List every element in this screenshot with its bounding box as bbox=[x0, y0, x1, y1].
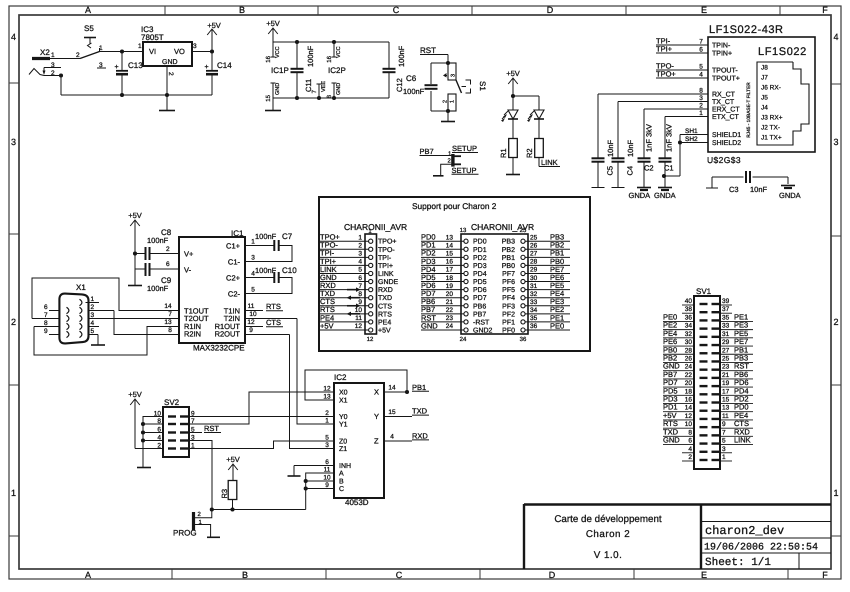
svg-text:9: 9 bbox=[44, 328, 48, 335]
svg-text:15: 15 bbox=[265, 94, 272, 101]
svg-text:MAX3232CPE: MAX3232CPE bbox=[193, 344, 245, 353]
svg-text:11: 11 bbox=[722, 413, 729, 420]
svg-text:23: 23 bbox=[446, 315, 454, 322]
svg-text:6: 6 bbox=[325, 459, 329, 466]
svg-text:7: 7 bbox=[44, 312, 48, 319]
svg-text:C: C bbox=[393, 5, 400, 15]
svg-text:3: 3 bbox=[11, 137, 16, 147]
svg-text:PF5: PF5 bbox=[502, 287, 515, 294]
svg-text:J5: J5 bbox=[761, 95, 768, 102]
svg-text:10nF: 10nF bbox=[750, 185, 768, 194]
svg-text:RST: RST bbox=[204, 424, 219, 433]
svg-text:PD4: PD4 bbox=[473, 271, 487, 278]
svg-text:S1: S1 bbox=[478, 81, 487, 91]
svg-text:SV1: SV1 bbox=[696, 287, 712, 296]
svg-text:V+: V+ bbox=[184, 250, 194, 259]
svg-text:2: 2 bbox=[699, 103, 703, 110]
svg-text:PB3: PB3 bbox=[502, 239, 515, 246]
svg-text:34: 34 bbox=[685, 323, 693, 330]
svg-text:34: 34 bbox=[530, 307, 538, 314]
svg-text:32: 32 bbox=[685, 331, 693, 338]
svg-text:GND2: GND2 bbox=[473, 327, 493, 334]
svg-text:GND: GND bbox=[275, 83, 281, 95]
svg-text:20: 20 bbox=[446, 291, 454, 298]
svg-text:17: 17 bbox=[446, 267, 454, 274]
svg-text:100nF: 100nF bbox=[147, 284, 169, 293]
svg-text:4: 4 bbox=[251, 271, 255, 278]
svg-text:TPOUT-: TPOUT- bbox=[712, 68, 738, 75]
svg-text:28: 28 bbox=[685, 347, 693, 354]
svg-text:40: 40 bbox=[685, 298, 693, 305]
svg-text:21: 21 bbox=[446, 299, 454, 306]
svg-text:Y: Y bbox=[374, 412, 379, 421]
svg-text:100nF: 100nF bbox=[397, 45, 406, 67]
svg-text:C6: C6 bbox=[406, 74, 417, 83]
svg-text:J6 RX-: J6 RX- bbox=[761, 85, 781, 92]
svg-text:23: 23 bbox=[722, 364, 730, 371]
svg-text:8: 8 bbox=[44, 320, 48, 327]
svg-text:INH: INH bbox=[339, 463, 351, 470]
svg-text:100nF: 100nF bbox=[147, 236, 169, 245]
svg-text:RJ45 - 10BASE-T FILTER: RJ45 - 10BASE-T FILTER bbox=[746, 82, 752, 138]
svg-text:C4: C4 bbox=[626, 166, 635, 176]
svg-text:15: 15 bbox=[722, 397, 730, 404]
svg-text:18: 18 bbox=[446, 275, 454, 282]
svg-text:25: 25 bbox=[520, 227, 527, 234]
svg-text:16: 16 bbox=[685, 397, 693, 404]
svg-text:9: 9 bbox=[325, 482, 329, 489]
svg-text:Charon 2: Charon 2 bbox=[586, 529, 630, 540]
svg-text:10: 10 bbox=[323, 475, 331, 482]
svg-text:4: 4 bbox=[699, 72, 703, 79]
svg-text:J3 RX+: J3 RX+ bbox=[761, 115, 783, 122]
svg-text:PD5: PD5 bbox=[473, 279, 487, 286]
svg-text:1: 1 bbox=[191, 443, 195, 450]
svg-text:5: 5 bbox=[91, 328, 95, 335]
svg-text:39: 39 bbox=[722, 298, 730, 305]
svg-text:31: 31 bbox=[530, 283, 538, 290]
svg-text:+5V: +5V bbox=[266, 19, 280, 28]
svg-text:GNDE: GNDE bbox=[378, 279, 399, 286]
svg-text:LINK: LINK bbox=[734, 436, 751, 445]
svg-text:36: 36 bbox=[685, 314, 693, 321]
svg-text:12: 12 bbox=[685, 413, 693, 420]
svg-text:1: 1 bbox=[251, 239, 255, 246]
svg-text:2: 2 bbox=[833, 317, 838, 327]
svg-text:11: 11 bbox=[355, 315, 362, 322]
svg-text:12: 12 bbox=[323, 386, 331, 393]
svg-text:R2IN: R2IN bbox=[184, 330, 201, 339]
svg-text:TPO+: TPO+ bbox=[378, 239, 396, 246]
svg-text:13: 13 bbox=[446, 234, 454, 241]
svg-text:13: 13 bbox=[722, 405, 730, 412]
svg-text:17: 17 bbox=[722, 388, 730, 395]
svg-text:Z0: Z0 bbox=[339, 439, 347, 446]
svg-text:RTS: RTS bbox=[378, 311, 392, 318]
svg-text:13: 13 bbox=[323, 394, 331, 401]
svg-text:6: 6 bbox=[166, 261, 170, 268]
svg-text:PE0: PE0 bbox=[550, 321, 564, 330]
svg-text:C1: C1 bbox=[664, 164, 674, 173]
svg-text:100nF: 100nF bbox=[306, 45, 315, 67]
svg-text:LF1S022-43R: LF1S022-43R bbox=[709, 24, 784, 36]
svg-text:6: 6 bbox=[688, 438, 692, 445]
svg-text:3: 3 bbox=[193, 43, 197, 50]
svg-text:5: 5 bbox=[699, 64, 703, 71]
svg-text:D: D bbox=[547, 5, 554, 15]
svg-text:R2OUT: R2OUT bbox=[215, 330, 241, 339]
svg-text:RTS: RTS bbox=[266, 302, 281, 311]
svg-text:10nF: 10nF bbox=[606, 139, 615, 157]
svg-text:GND: GND bbox=[336, 83, 342, 95]
svg-text:TPI-: TPI- bbox=[378, 255, 392, 262]
svg-text:GNDA: GNDA bbox=[654, 191, 676, 200]
svg-text:8: 8 bbox=[358, 291, 362, 298]
svg-text:4: 4 bbox=[833, 32, 838, 42]
svg-text:D: D bbox=[549, 570, 556, 580]
svg-text:R2: R2 bbox=[525, 148, 534, 158]
svg-text:10: 10 bbox=[355, 307, 363, 314]
svg-text:PB7: PB7 bbox=[473, 311, 486, 318]
svg-text:8: 8 bbox=[699, 88, 703, 95]
svg-text:RX_CT: RX_CT bbox=[712, 92, 736, 99]
svg-text:30: 30 bbox=[530, 275, 538, 282]
svg-text:U$2G$3: U$2G$3 bbox=[707, 155, 741, 165]
svg-text:100nF: 100nF bbox=[255, 232, 277, 241]
svg-text:GND: GND bbox=[162, 59, 178, 66]
svg-text:C7: C7 bbox=[282, 232, 293, 241]
svg-text:2: 2 bbox=[11, 317, 16, 327]
svg-text:V-: V- bbox=[184, 266, 192, 275]
svg-text:GNDA: GNDA bbox=[779, 191, 801, 200]
svg-text:PB6: PB6 bbox=[473, 303, 486, 310]
svg-text:TPI+: TPI+ bbox=[378, 263, 393, 270]
svg-text:J8: J8 bbox=[761, 65, 768, 72]
svg-text:A: A bbox=[85, 5, 91, 15]
svg-text:7: 7 bbox=[699, 39, 703, 46]
svg-text:B: B bbox=[339, 479, 344, 486]
svg-text:+5V: +5V bbox=[378, 327, 391, 334]
svg-text:4: 4 bbox=[11, 32, 16, 42]
svg-text:VCC: VCC bbox=[275, 46, 281, 58]
svg-text:X0: X0 bbox=[339, 390, 348, 397]
svg-text:16: 16 bbox=[326, 55, 333, 62]
svg-text:VO: VO bbox=[174, 47, 185, 56]
svg-text:1: 1 bbox=[722, 454, 726, 461]
svg-text:X1: X1 bbox=[76, 283, 86, 292]
svg-text:1: 1 bbox=[833, 488, 838, 498]
svg-text:S5: S5 bbox=[84, 24, 94, 33]
svg-text:TPIN-: TPIN- bbox=[712, 43, 731, 50]
svg-text:B: B bbox=[242, 570, 248, 580]
svg-text:13: 13 bbox=[164, 319, 172, 326]
svg-text:28: 28 bbox=[530, 259, 538, 266]
svg-text:PD1: PD1 bbox=[473, 247, 487, 254]
svg-text:PF2: PF2 bbox=[502, 311, 515, 318]
svg-text:31: 31 bbox=[722, 331, 730, 338]
svg-text:21: 21 bbox=[722, 372, 730, 379]
svg-text:Support pour Charon 2: Support pour Charon 2 bbox=[412, 201, 497, 211]
svg-text:VCC: VCC bbox=[336, 46, 342, 58]
svg-text:3: 3 bbox=[833, 137, 838, 147]
svg-text:C1+: C1+ bbox=[226, 242, 241, 251]
svg-text:A: A bbox=[85, 570, 91, 580]
svg-text:PD6: PD6 bbox=[473, 287, 487, 294]
svg-text:7: 7 bbox=[358, 283, 362, 290]
svg-text:5: 5 bbox=[358, 267, 362, 274]
svg-text:14: 14 bbox=[388, 385, 396, 392]
svg-text:19/06/2006 22:50:54: 19/06/2006 22:50:54 bbox=[704, 542, 818, 554]
svg-text:+5V: +5V bbox=[207, 21, 221, 30]
svg-text:V 1.0.: V 1.0. bbox=[594, 550, 623, 561]
svg-text:32: 32 bbox=[530, 291, 538, 298]
svg-text:C1-: C1- bbox=[228, 258, 241, 267]
svg-text:16: 16 bbox=[446, 259, 454, 266]
svg-text:36: 36 bbox=[530, 323, 538, 330]
svg-text:1: 1 bbox=[699, 110, 703, 117]
svg-text:3: 3 bbox=[451, 74, 457, 77]
svg-text:Z1: Z1 bbox=[339, 446, 347, 453]
svg-text:LINK: LINK bbox=[541, 158, 558, 167]
svg-text:SHIELD1: SHIELD1 bbox=[712, 132, 741, 139]
svg-text:Sheet: 1/1: Sheet: 1/1 bbox=[705, 557, 771, 569]
svg-text:PF0: PF0 bbox=[502, 327, 515, 334]
svg-text:3: 3 bbox=[251, 255, 255, 262]
svg-text:TPOUT+: TPOUT+ bbox=[712, 76, 740, 83]
svg-text:100nF: 100nF bbox=[403, 87, 425, 96]
svg-text:+5V: +5V bbox=[320, 321, 334, 330]
svg-text:PF3: PF3 bbox=[502, 303, 515, 310]
svg-text:PD7: PD7 bbox=[473, 295, 487, 302]
svg-text:A: A bbox=[339, 471, 344, 478]
svg-text:24: 24 bbox=[446, 323, 454, 330]
svg-text:22: 22 bbox=[685, 372, 693, 379]
svg-text:X1: X1 bbox=[339, 398, 348, 405]
svg-text:26: 26 bbox=[685, 355, 693, 362]
svg-text:8: 8 bbox=[168, 327, 172, 334]
svg-text:PB1: PB1 bbox=[412, 383, 426, 392]
svg-text:SHIELD2: SHIELD2 bbox=[712, 140, 741, 147]
svg-text:TPO-: TPO- bbox=[378, 247, 395, 254]
svg-text:PF1: PF1 bbox=[502, 319, 515, 326]
svg-text:9: 9 bbox=[722, 421, 726, 428]
svg-text:X2: X2 bbox=[40, 48, 50, 57]
svg-text:GND: GND bbox=[421, 321, 438, 330]
svg-text:IC2: IC2 bbox=[334, 373, 347, 382]
svg-text:2: 2 bbox=[166, 246, 170, 253]
svg-text:VEE: VEE bbox=[321, 81, 327, 92]
svg-text:9: 9 bbox=[249, 327, 253, 334]
svg-text:TPIN+: TPIN+ bbox=[712, 51, 732, 58]
svg-text:PD0: PD0 bbox=[473, 239, 487, 246]
svg-text:SETUP: SETUP bbox=[452, 166, 477, 175]
svg-text:IC2P: IC2P bbox=[328, 66, 346, 75]
svg-text:10: 10 bbox=[249, 311, 257, 318]
svg-text:SV2: SV2 bbox=[164, 398, 180, 407]
svg-text:2: 2 bbox=[91, 304, 95, 311]
svg-text:3: 3 bbox=[91, 312, 95, 319]
svg-text:F: F bbox=[822, 570, 828, 580]
svg-text:+5V: +5V bbox=[128, 390, 142, 399]
svg-text:19: 19 bbox=[722, 380, 730, 387]
svg-text:13: 13 bbox=[460, 227, 467, 234]
svg-text:1nF 3kV: 1nF 3kV bbox=[665, 124, 674, 152]
svg-text:PD3: PD3 bbox=[473, 263, 487, 270]
svg-text:Y1: Y1 bbox=[339, 422, 348, 429]
svg-text:5: 5 bbox=[325, 435, 329, 442]
svg-text:1: 1 bbox=[450, 100, 456, 103]
svg-text:C2: C2 bbox=[644, 164, 654, 173]
svg-text:R3: R3 bbox=[220, 489, 229, 499]
svg-text:X: X bbox=[374, 388, 379, 397]
svg-text:6: 6 bbox=[699, 47, 703, 54]
svg-text:18: 18 bbox=[685, 388, 693, 395]
svg-text:35: 35 bbox=[722, 314, 730, 321]
svg-text:PB2: PB2 bbox=[502, 247, 515, 254]
svg-text:-RST: -RST bbox=[473, 319, 490, 326]
svg-text:29: 29 bbox=[530, 267, 538, 274]
svg-text:C3: C3 bbox=[729, 185, 739, 194]
svg-text:19: 19 bbox=[446, 283, 454, 290]
svg-text:2: 2 bbox=[688, 454, 692, 461]
svg-text:C2-: C2- bbox=[228, 290, 241, 299]
svg-text:7: 7 bbox=[191, 418, 195, 425]
svg-text:2: 2 bbox=[76, 52, 80, 59]
svg-text:12: 12 bbox=[367, 336, 374, 343]
svg-text:TX_CT: TX_CT bbox=[712, 99, 735, 106]
svg-text:ETX_CT: ETX_CT bbox=[712, 114, 740, 121]
svg-text:J7: J7 bbox=[761, 75, 768, 82]
svg-text:4: 4 bbox=[390, 434, 394, 441]
svg-text:SH2: SH2 bbox=[685, 136, 698, 143]
svg-text:TXD: TXD bbox=[378, 295, 392, 302]
svg-text:PB7: PB7 bbox=[420, 147, 434, 156]
svg-text:C13: C13 bbox=[128, 61, 143, 70]
svg-text:2: 2 bbox=[443, 100, 449, 103]
svg-text:2: 2 bbox=[167, 72, 174, 76]
svg-text:PF6: PF6 bbox=[502, 279, 515, 286]
svg-text:SH1: SH1 bbox=[685, 128, 698, 135]
svg-text:RXD: RXD bbox=[378, 287, 393, 294]
svg-text:C: C bbox=[396, 570, 403, 580]
svg-text:10nF: 10nF bbox=[626, 139, 635, 157]
svg-text:PB0: PB0 bbox=[502, 263, 515, 270]
svg-text:6: 6 bbox=[358, 275, 362, 282]
svg-text:1: 1 bbox=[91, 296, 95, 303]
svg-text:4: 4 bbox=[91, 320, 95, 327]
svg-text:33: 33 bbox=[530, 299, 538, 306]
svg-text:CTS: CTS bbox=[266, 318, 281, 327]
svg-text:7: 7 bbox=[168, 311, 172, 318]
svg-text:4: 4 bbox=[358, 259, 362, 266]
svg-text:TPI+: TPI+ bbox=[656, 45, 673, 54]
svg-text:CTS: CTS bbox=[378, 303, 392, 310]
svg-text:C14: C14 bbox=[217, 61, 232, 70]
svg-text:9: 9 bbox=[191, 411, 195, 418]
svg-text:15: 15 bbox=[388, 409, 396, 416]
svg-text:36: 36 bbox=[520, 336, 527, 343]
svg-text:IC1P: IC1P bbox=[271, 66, 289, 75]
svg-text:3: 3 bbox=[325, 442, 329, 449]
svg-text:1: 1 bbox=[325, 418, 329, 425]
svg-text:14: 14 bbox=[446, 242, 454, 249]
svg-text:7: 7 bbox=[722, 429, 726, 436]
svg-text:GND: GND bbox=[663, 436, 680, 445]
svg-text:14: 14 bbox=[164, 303, 172, 310]
svg-text:30: 30 bbox=[685, 339, 693, 346]
svg-text:R1: R1 bbox=[499, 148, 508, 158]
svg-text:1: 1 bbox=[51, 52, 55, 59]
svg-text:B: B bbox=[239, 5, 245, 15]
svg-text:+5V: +5V bbox=[226, 455, 240, 464]
svg-text:+5V: +5V bbox=[128, 211, 142, 220]
svg-text:C: C bbox=[339, 486, 344, 493]
svg-text:ERX_CT: ERX_CT bbox=[712, 107, 740, 114]
svg-text:LF1S022: LF1S022 bbox=[758, 46, 807, 58]
svg-text:+5V: +5V bbox=[506, 69, 520, 78]
svg-text:1: 1 bbox=[358, 234, 362, 241]
svg-text:Y0: Y0 bbox=[339, 414, 348, 421]
svg-text:5: 5 bbox=[722, 438, 726, 445]
svg-text:20: 20 bbox=[685, 380, 693, 387]
svg-text:6: 6 bbox=[44, 304, 48, 311]
svg-text:TPO+: TPO+ bbox=[656, 70, 676, 79]
svg-text:Carte de développement: Carte de développement bbox=[554, 514, 662, 525]
svg-text:27: 27 bbox=[530, 251, 538, 258]
svg-text:GNDA: GNDA bbox=[629, 191, 651, 200]
svg-text:37: 37 bbox=[722, 306, 730, 313]
svg-text:charon2_dev: charon2_dev bbox=[705, 524, 784, 538]
svg-text:4: 4 bbox=[688, 446, 692, 453]
svg-text:3: 3 bbox=[722, 446, 726, 453]
svg-text:3: 3 bbox=[358, 251, 362, 258]
svg-text:16: 16 bbox=[265, 55, 272, 62]
svg-text:33: 33 bbox=[722, 323, 730, 330]
svg-text:9: 9 bbox=[358, 299, 362, 306]
svg-text:7805T: 7805T bbox=[141, 33, 164, 42]
svg-text:CHARONII_AVR: CHARONII_AVR bbox=[344, 222, 407, 232]
svg-text:27: 27 bbox=[722, 347, 730, 354]
svg-text:1nF 3kV: 1nF 3kV bbox=[645, 124, 654, 152]
svg-text:SETUP: SETUP bbox=[452, 144, 477, 153]
svg-text:11: 11 bbox=[324, 467, 331, 474]
svg-text:LINK: LINK bbox=[378, 271, 394, 278]
svg-text:PE4: PE4 bbox=[378, 319, 391, 326]
svg-text:J2 TX-: J2 TX- bbox=[761, 125, 780, 132]
svg-text:E: E bbox=[701, 5, 707, 15]
svg-text:3: 3 bbox=[699, 95, 703, 102]
svg-text:12: 12 bbox=[355, 323, 363, 330]
svg-text:10: 10 bbox=[685, 421, 693, 428]
svg-text:35: 35 bbox=[530, 315, 538, 322]
svg-text:PD2: PD2 bbox=[473, 255, 487, 262]
svg-text:24: 24 bbox=[685, 364, 693, 371]
svg-text:F: F bbox=[822, 5, 828, 15]
svg-text:2: 2 bbox=[358, 242, 362, 249]
svg-text:Z: Z bbox=[374, 437, 379, 446]
svg-text:J1 TX+: J1 TX+ bbox=[761, 135, 782, 142]
svg-text:11: 11 bbox=[248, 303, 255, 310]
svg-text:4053D: 4053D bbox=[345, 498, 369, 507]
svg-text:TXD: TXD bbox=[412, 407, 428, 416]
svg-text:12: 12 bbox=[247, 319, 255, 326]
svg-text:1: 1 bbox=[138, 43, 142, 50]
svg-text:1: 1 bbox=[11, 488, 16, 498]
svg-text:PF7: PF7 bbox=[502, 271, 515, 278]
svg-text:C2+: C2+ bbox=[226, 274, 241, 283]
svg-text:29: 29 bbox=[722, 339, 730, 346]
svg-text:25: 25 bbox=[722, 355, 730, 362]
